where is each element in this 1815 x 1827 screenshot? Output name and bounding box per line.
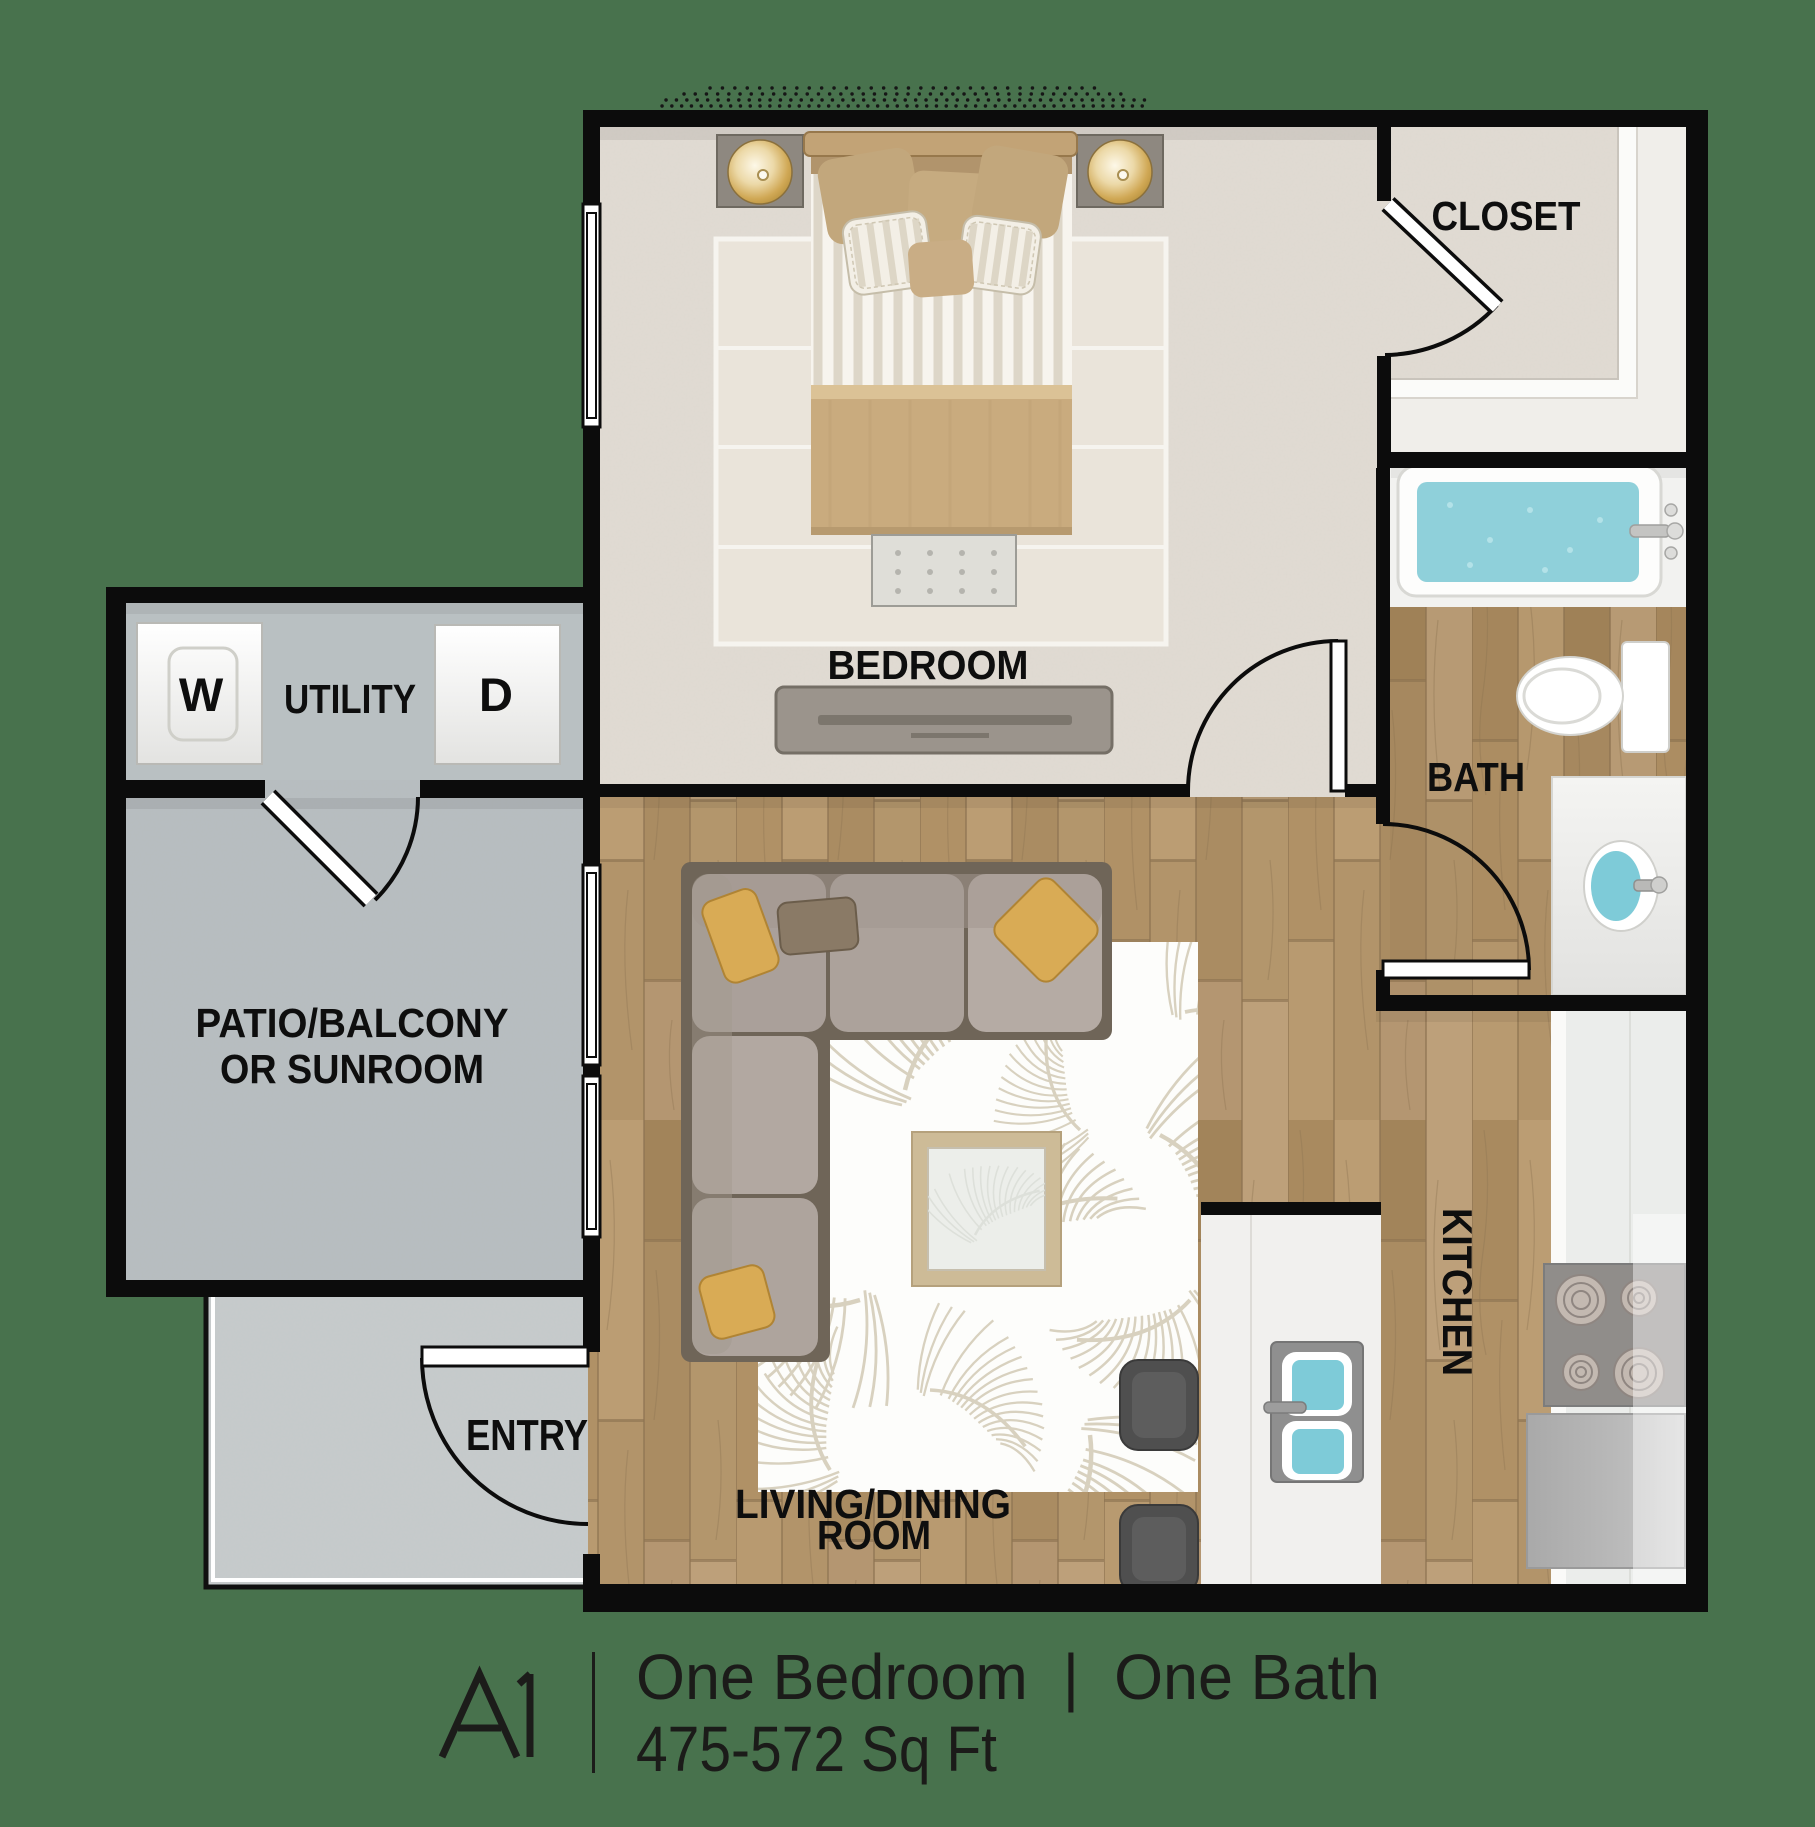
svg-text:ENTRY: ENTRY <box>466 1411 588 1460</box>
svg-text:W: W <box>179 668 224 721</box>
svg-text:KITCHEN: KITCHEN <box>1434 1208 1481 1376</box>
svg-text:One Bedroom | One Bath: One Bedroom | One Bath <box>636 1641 1380 1713</box>
svg-text:475-572 Sq Ft: 475-572 Sq Ft <box>636 1713 997 1785</box>
svg-text:OR SUNROOM: OR SUNROOM <box>220 1046 484 1092</box>
svg-text:BATH: BATH <box>1427 754 1525 800</box>
svg-text:D: D <box>479 668 513 721</box>
svg-text:PATIO/BALCONY: PATIO/BALCONY <box>196 1000 509 1046</box>
svg-text:BEDROOM: BEDROOM <box>828 642 1029 688</box>
svg-text:ROOM: ROOM <box>817 1512 931 1558</box>
svg-text:CLOSET: CLOSET <box>1432 193 1581 239</box>
svg-text:UTILITY: UTILITY <box>284 676 416 722</box>
